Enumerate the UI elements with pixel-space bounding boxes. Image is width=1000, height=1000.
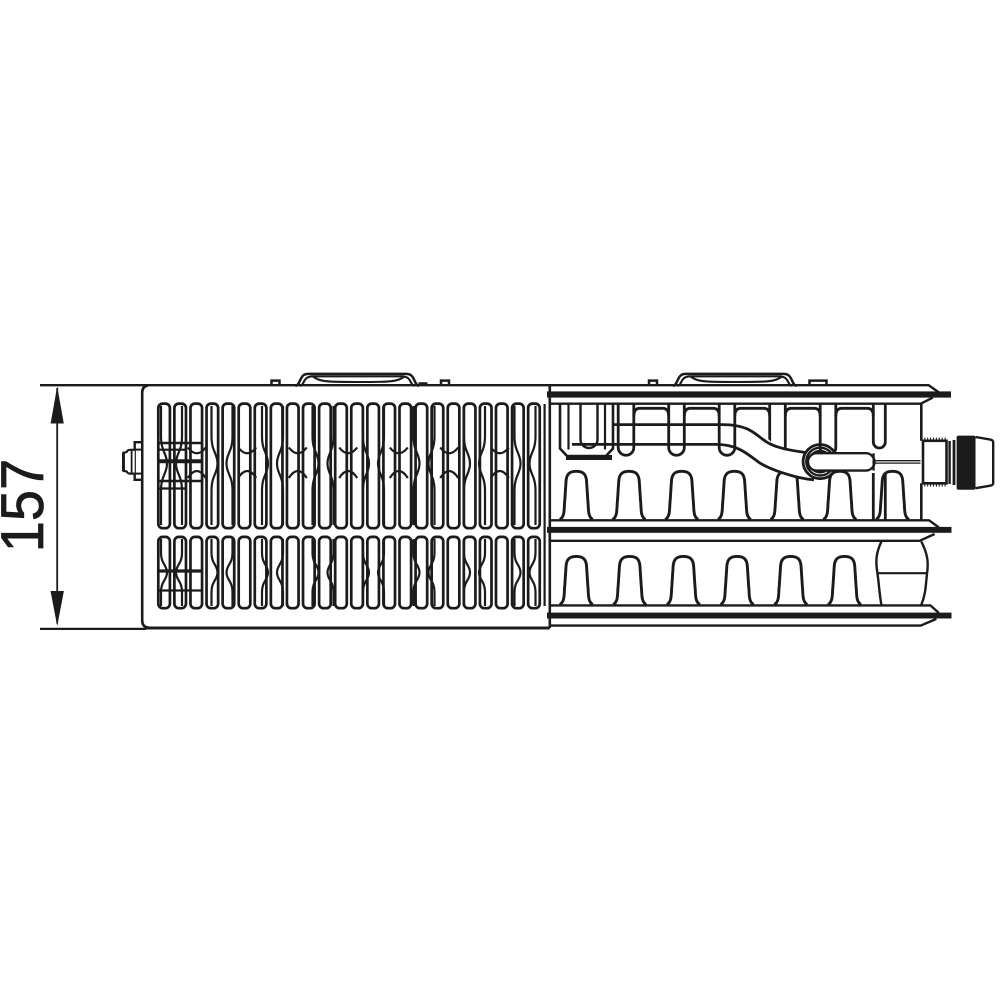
- svg-text:157: 157: [0, 459, 56, 552]
